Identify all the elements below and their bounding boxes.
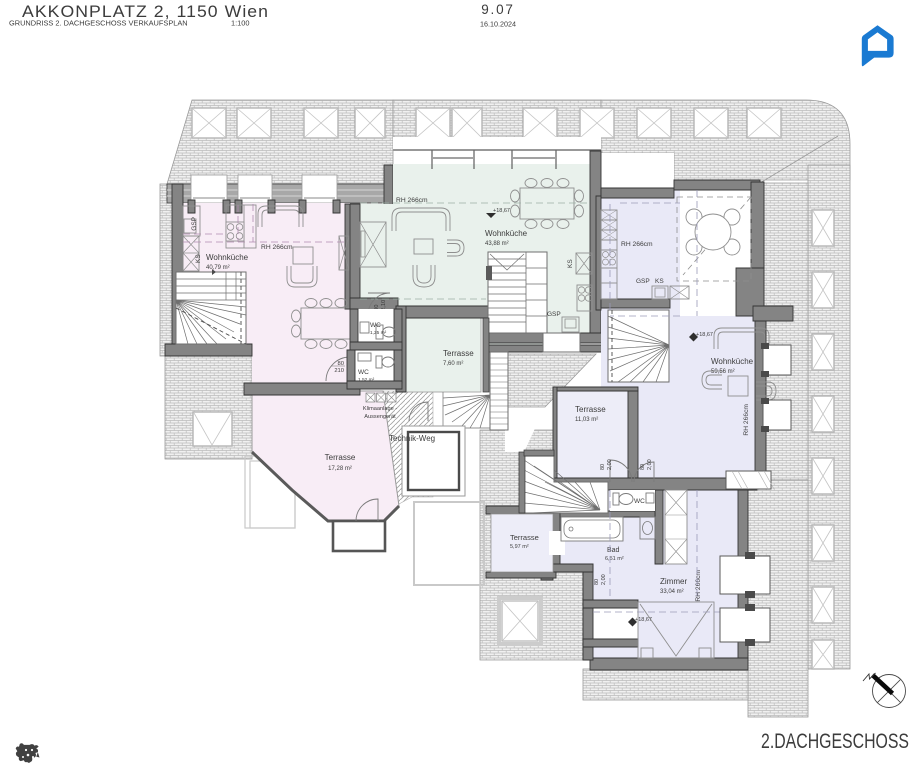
svg-text:RH 266cm: RH 266cm xyxy=(261,244,293,251)
svg-text:WC: WC xyxy=(370,322,381,329)
svg-text:GSP: GSP xyxy=(636,278,650,285)
svg-text:2,00: 2,00 xyxy=(601,574,607,585)
svg-text:RH 266cm: RH 266cm xyxy=(621,241,653,248)
svg-text:2,00: 2,00 xyxy=(647,459,653,470)
svg-text:16.10.2024: 16.10.2024 xyxy=(480,20,516,29)
svg-text:Bad: Bad xyxy=(607,547,620,554)
svg-text:Terrasse: Terrasse xyxy=(443,349,474,358)
svg-text:80: 80 xyxy=(600,464,606,470)
svg-text:Klimaanlage -: Klimaanlage - xyxy=(363,406,397,412)
svg-text:GSP: GSP xyxy=(547,311,561,318)
svg-text:Wohnküche: Wohnküche xyxy=(485,229,528,238)
svg-text:Technik-Weg: Technik-Weg xyxy=(389,434,435,443)
svg-text:80: 80 xyxy=(594,579,600,585)
svg-text:Zimmer: Zimmer xyxy=(660,577,687,586)
svg-text:80: 80 xyxy=(640,464,646,470)
svg-text:59,56 m²: 59,56 m² xyxy=(711,369,735,375)
svg-text:33,04 m²: 33,04 m² xyxy=(660,589,684,595)
svg-text:Terrasse: Terrasse xyxy=(510,533,539,542)
svg-text:9.07: 9.07 xyxy=(481,2,514,17)
svg-text:Wohnküche: Wohnküche xyxy=(711,357,754,366)
svg-text:GRUNDRISS 2. DACHGESCHOSS VERK: GRUNDRISS 2. DACHGESCHOSS VERKAUFSPLAN xyxy=(9,19,188,28)
svg-text:Aussengerät: Aussengerät xyxy=(364,414,396,420)
svg-text:1,52 m²: 1,52 m² xyxy=(358,377,375,383)
svg-text:Terrasse: Terrasse xyxy=(325,453,356,462)
svg-text:KS: KS xyxy=(195,254,202,263)
svg-text:11,03 m²: 11,03 m² xyxy=(575,417,598,423)
svg-text:1:100: 1:100 xyxy=(231,19,250,28)
svg-text:+18,67: +18,67 xyxy=(493,208,510,214)
svg-text:KS: KS xyxy=(567,259,574,268)
svg-text:RH 266cm: RH 266cm xyxy=(743,404,750,436)
svg-text:Terrasse: Terrasse xyxy=(575,405,606,414)
svg-text:210: 210 xyxy=(334,368,344,374)
svg-text:WC: WC xyxy=(634,498,645,505)
svg-text:2,00: 2,00 xyxy=(607,459,613,470)
svg-text:RH 266cm: RH 266cm xyxy=(695,570,702,602)
svg-text:WC: WC xyxy=(358,369,369,376)
svg-text:RH 266cm: RH 266cm xyxy=(396,197,428,204)
svg-text:40,79 m²: 40,79 m² xyxy=(206,265,230,271)
svg-text:KS: KS xyxy=(655,278,664,285)
svg-text:2.DACHGESCHOSS: 2.DACHGESCHOSS xyxy=(761,730,909,753)
svg-text:5,97 m²: 5,97 m² xyxy=(510,544,529,550)
svg-text:Wohnküche: Wohnküche xyxy=(206,253,249,262)
svg-text:17,28 m²: 17,28 m² xyxy=(328,466,352,472)
svg-text:43,88 m²: 43,88 m² xyxy=(485,241,509,247)
svg-text:6,51 m²: 6,51 m² xyxy=(605,556,624,562)
svg-text:7,60 m²: 7,60 m² xyxy=(443,361,463,367)
svg-text:GSP: GSP xyxy=(191,217,198,231)
svg-text:1,25 m²: 1,25 m² xyxy=(370,330,387,336)
svg-text:+18,67: +18,67 xyxy=(696,332,713,338)
